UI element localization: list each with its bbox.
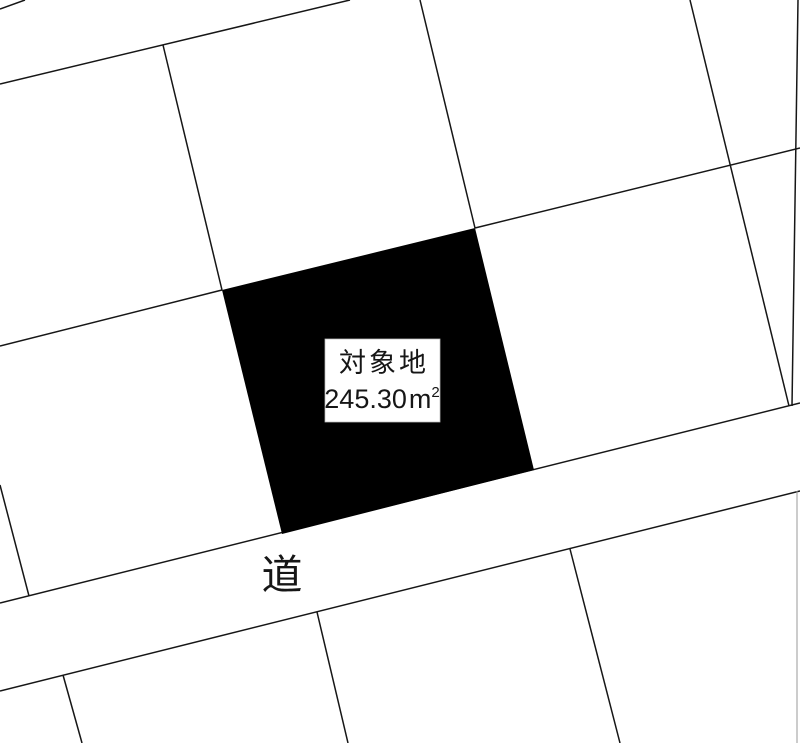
- parcel-boundary-line-top-left-corner: [0, 0, 25, 9]
- target-parcel-area-unit: m: [409, 384, 432, 414]
- road-lower-edge-line: [0, 491, 800, 691]
- parcel-boundary-line-west: [0, 290, 222, 346]
- road-label: 道: [262, 552, 303, 598]
- parcel-boundary-line-above-target: [420, 0, 475, 228]
- parcel-boundary-line-south-3: [570, 549, 620, 743]
- target-parcel-name-label: 対象地: [339, 348, 429, 378]
- parcel-boundary-line-south-2: [317, 612, 348, 743]
- target-parcel-area-label: 245.30m2: [324, 384, 439, 414]
- parcel-boundary-line-southwest: [0, 485, 29, 596]
- cadastral-map: 対象地 245.30m2 道: [0, 0, 800, 743]
- parcel-boundary-line-northeast: [690, 0, 789, 406]
- parcel-boundary-line-south-1: [63, 675, 82, 743]
- target-parcel-area-value: 245.30: [324, 384, 407, 414]
- parcel-boundary-line-east-upper: [475, 148, 800, 228]
- target-parcel-area-unit-exponent: 2: [431, 384, 439, 401]
- parcel-boundary-line-upper-left: [0, 0, 350, 84]
- parcel-boundary-line-left-of-target: [163, 45, 222, 290]
- map-canvas: 対象地 245.30m2 道: [0, 0, 800, 743]
- parcel-boundary-line-right-edge: [792, 0, 798, 406]
